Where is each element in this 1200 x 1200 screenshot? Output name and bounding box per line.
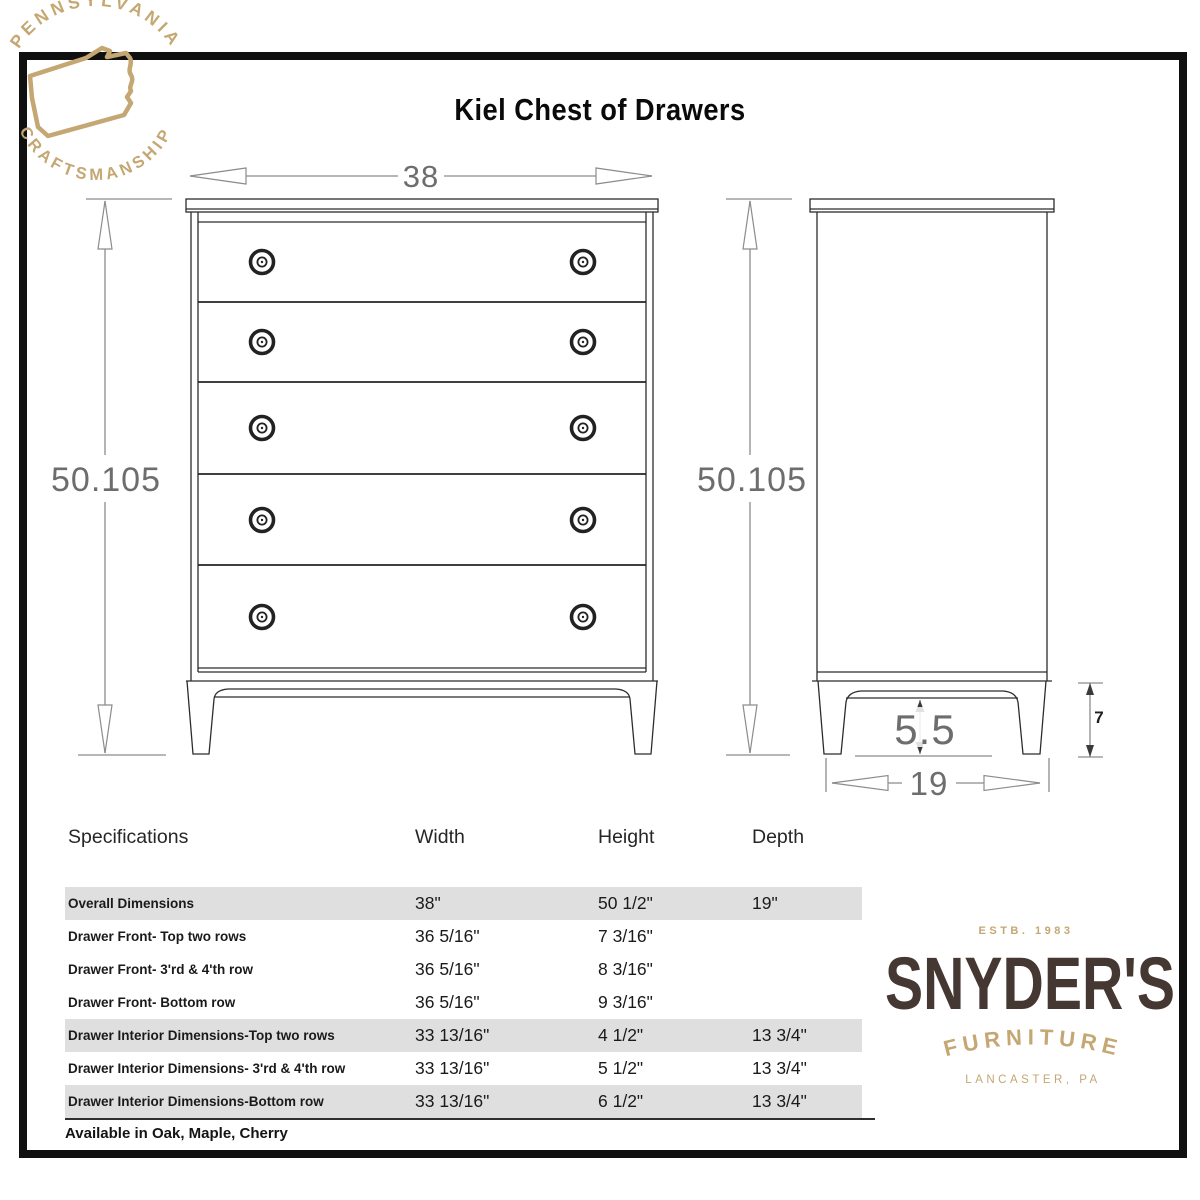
row-height: 5 1/2" bbox=[598, 1052, 643, 1085]
row-width: 36 5/16" bbox=[415, 986, 480, 1019]
brand-location-text: LANCASTER, PA bbox=[965, 1074, 1100, 1086]
front-height-label: 50.105 bbox=[51, 461, 161, 499]
pennsylvania-craftsmanship-badge: PENNSYLVANIA CRAFTSMANSHIP bbox=[0, 0, 206, 206]
row-label: Drawer Front- Top two rows bbox=[68, 920, 246, 953]
row-depth: 13 3/4" bbox=[752, 1019, 807, 1052]
snyders-furniture-logo: ESTB. 1983 SNYDER'S FURNITURE LANCASTER,… bbox=[880, 912, 1187, 1102]
row-width: 33 13/16" bbox=[415, 1052, 489, 1085]
front-width-dimension: 38 bbox=[190, 159, 652, 194]
svg-text:CRAFTSMANSHIP: CRAFTSMANSHIP bbox=[16, 124, 177, 184]
specifications-table: Specifications Width Height Depth Overal… bbox=[65, 822, 875, 1142]
pennsylvania-state-outline-icon bbox=[30, 48, 132, 136]
side-height-dimension: 50.105 bbox=[697, 199, 807, 755]
table-row: Drawer Front- 3'rd & 4'th row 36 5/16" 8… bbox=[65, 953, 862, 986]
front-carcass bbox=[186, 212, 658, 681]
header-height: Height bbox=[598, 826, 654, 849]
row-depth: 19" bbox=[752, 887, 778, 920]
brand-estb-text: ESTB. 1983 bbox=[979, 925, 1074, 937]
available-woods-note: Available in Oak, Maple, Cherry bbox=[65, 1118, 875, 1142]
row-width: 33 13/16" bbox=[415, 1019, 489, 1052]
row-height: 4 1/2" bbox=[598, 1019, 643, 1052]
row-label: Drawer Interior Dimensions-Bottom row bbox=[68, 1085, 324, 1118]
row-height: 6 1/2" bbox=[598, 1085, 643, 1118]
table-row: Drawer Front- Top two rows 36 5/16" 7 3/… bbox=[65, 920, 862, 953]
table-row: Drawer Front- Bottom row 36 5/16" 9 3/16… bbox=[65, 986, 862, 1019]
front-view: 38 bbox=[51, 159, 658, 755]
badge-top-text: PENNSYLVANIA bbox=[6, 0, 187, 52]
side-top-panel bbox=[810, 199, 1054, 212]
brand-name-text: SNYDER'S bbox=[885, 942, 1175, 1025]
side-leg-height-label: 7 bbox=[1094, 708, 1103, 727]
header-depth: Depth bbox=[752, 826, 804, 849]
table-row: Drawer Interior Dimensions- 3'rd & 4'th … bbox=[65, 1052, 862, 1085]
front-width-label: 38 bbox=[403, 159, 439, 194]
front-height-dimension: 50.105 bbox=[51, 199, 172, 755]
svg-text:PENNSYLVANIA: PENNSYLVANIA bbox=[6, 0, 187, 52]
front-top-panel bbox=[186, 199, 658, 212]
side-clearance-dimension: 5.5 bbox=[855, 700, 992, 756]
row-height: 9 3/16" bbox=[598, 986, 653, 1019]
row-width: 36 5/16" bbox=[415, 920, 480, 953]
side-depth-dimension: 19 bbox=[826, 758, 1049, 802]
row-label: Drawer Front- 3'rd & 4'th row bbox=[68, 953, 253, 986]
side-leg-height-dimension: 7 bbox=[1078, 683, 1104, 757]
page-title: Kiel Chest of Drawers bbox=[292, 92, 908, 128]
header-specifications: Specifications bbox=[68, 826, 188, 849]
row-label: Overall Dimensions bbox=[68, 887, 194, 920]
side-body bbox=[812, 212, 1052, 681]
row-label: Drawer Front- Bottom row bbox=[68, 986, 235, 1019]
row-label: Drawer Interior Dimensions-Top two rows bbox=[68, 1019, 335, 1052]
row-height: 8 3/16" bbox=[598, 953, 653, 986]
table-row: Overall Dimensions 38" 50 1/2" 19" bbox=[65, 887, 862, 920]
side-depth-label: 19 bbox=[910, 765, 949, 802]
header-width: Width bbox=[415, 826, 465, 849]
row-height: 7 3/16" bbox=[598, 920, 653, 953]
spec-table-header: Specifications Width Height Depth bbox=[65, 822, 875, 887]
front-drawers bbox=[198, 222, 646, 668]
row-width: 36 5/16" bbox=[415, 953, 480, 986]
row-depth: 13 3/4" bbox=[752, 1085, 807, 1118]
row-width: 38" bbox=[415, 887, 441, 920]
svg-text:FURNITURE: FURNITURE bbox=[941, 1024, 1125, 1061]
table-row: Drawer Interior Dimensions-Top two rows … bbox=[65, 1019, 862, 1052]
side-clearance-label: 5.5 bbox=[894, 706, 955, 753]
badge-bottom-text: CRAFTSMANSHIP bbox=[16, 124, 177, 184]
front-legs bbox=[187, 681, 657, 754]
row-label: Drawer Interior Dimensions- 3'rd & 4'th … bbox=[68, 1052, 345, 1085]
drawer-knobs bbox=[251, 251, 595, 629]
side-height-label: 50.105 bbox=[697, 461, 807, 499]
side-view: 50.105 5.5 19 7 bbox=[697, 199, 1104, 802]
table-row: Drawer Interior Dimensions-Bottom row 33… bbox=[65, 1085, 862, 1118]
row-width: 33 13/16" bbox=[415, 1085, 489, 1118]
row-depth: 13 3/4" bbox=[752, 1052, 807, 1085]
brand-furniture-text: FURNITURE bbox=[941, 1024, 1125, 1061]
row-height: 50 1/2" bbox=[598, 887, 653, 920]
